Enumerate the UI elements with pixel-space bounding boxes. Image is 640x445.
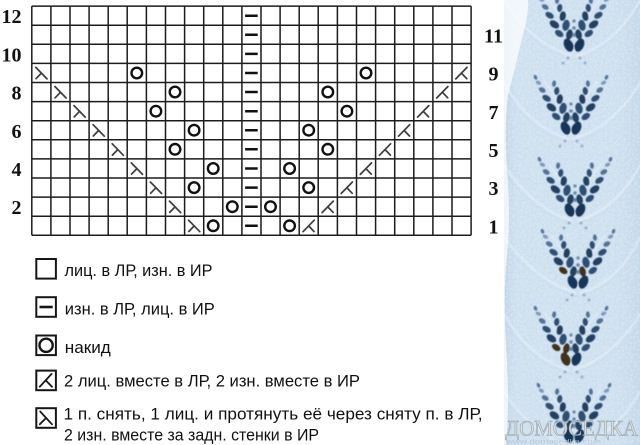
- svg-text:лиц. в ЛР, изн. в ИР: лиц. в ЛР, изн. в ИР: [65, 262, 213, 280]
- svg-text:1 п. снять, 1 лиц. и протянуть: 1 п. снять, 1 лиц. и протянуть её через …: [64, 406, 483, 424]
- svg-text:2 лиц. вместе в ЛР, 2 изн. вме: 2 лиц. вместе в ЛР, 2 изн. вместе в ИР: [64, 372, 360, 390]
- svg-text:11: 11: [484, 25, 503, 47]
- svg-text:накид: накид: [65, 339, 111, 357]
- svg-text:1: 1: [489, 216, 499, 238]
- svg-text:8: 8: [12, 83, 22, 105]
- svg-text:2 изн. вместе за задн. стенки: 2 изн. вместе за задн. стенки в ИР: [64, 427, 319, 445]
- svg-text:6: 6: [12, 121, 22, 143]
- svg-text:2: 2: [12, 197, 22, 219]
- svg-text:изн. в ЛР, лиц. в ИР: изн. в ЛР, лиц. в ИР: [65, 301, 215, 319]
- svg-text:4: 4: [12, 159, 22, 181]
- svg-text:5: 5: [489, 140, 499, 162]
- svg-text:10: 10: [2, 45, 22, 67]
- svg-text:7: 7: [489, 102, 499, 124]
- svg-text:12: 12: [2, 6, 22, 28]
- svg-text:3: 3: [489, 178, 499, 200]
- svg-text:9: 9: [489, 64, 499, 86]
